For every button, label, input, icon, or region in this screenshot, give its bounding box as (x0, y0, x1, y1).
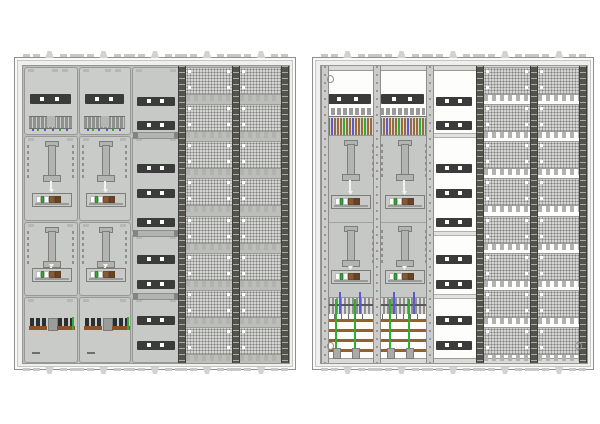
din-cover-strip (137, 316, 175, 325)
strip-column-cover (132, 297, 181, 363)
terminal-wire-stripe (413, 118, 415, 135)
busbar-clamp (387, 348, 395, 359)
din-cover-strip (137, 280, 175, 289)
mount-tab-dash (412, 368, 419, 371)
neutral-wire (359, 292, 361, 314)
bracket-base-lip (89, 203, 123, 205)
mount-tab-dash (60, 54, 67, 57)
mount-tab-bump (552, 367, 566, 374)
mount-tab-dash (569, 54, 576, 57)
mount-tab-dash (579, 54, 586, 57)
mount-tab-dash (244, 54, 251, 57)
section-separator (133, 132, 179, 139)
din-rail-clip-row (186, 206, 230, 212)
meter-terminal-bracket (385, 270, 425, 284)
din-rail-clip-row (484, 132, 528, 138)
comb-rail (324, 304, 373, 306)
mount-tab-dash (542, 54, 549, 57)
field-latch (105, 69, 111, 72)
mount-tab-bump (254, 51, 268, 58)
sls-device-tab (64, 318, 68, 326)
mount-tab-bump (97, 51, 111, 58)
mounting-hole (575, 342, 582, 350)
din-cover-strip (381, 94, 424, 104)
perforated-plate (239, 253, 287, 281)
rail-bracket (433, 294, 477, 299)
sls-device-tab (85, 318, 89, 326)
meter-rail-foot (43, 175, 61, 182)
cabinet-interior (22, 65, 290, 364)
mount-tab-dash (33, 368, 40, 371)
bracket-terminal-segment (354, 273, 360, 280)
busbar (378, 339, 427, 342)
terminal-wire-dot (32, 129, 34, 131)
mount-tab-dash (244, 368, 251, 371)
mount-tab-dash (227, 368, 234, 371)
bracket-terminal-segment (354, 198, 360, 205)
mount-tab-dash (579, 368, 586, 371)
mount-tab-dash (165, 54, 172, 57)
perforated-plate (537, 216, 585, 244)
terminal-wire-stripe (407, 118, 409, 135)
meter-mounting-bar (347, 144, 355, 176)
meter-mounting-bar (48, 231, 56, 263)
field-latch (28, 224, 34, 227)
perforated-plate (537, 253, 585, 281)
neutral-wire (393, 292, 395, 314)
perforated-plate (483, 253, 531, 281)
din-rail-clip-row (186, 318, 230, 324)
din-cover-strip (436, 341, 472, 350)
field-latch (120, 299, 126, 302)
perforated-plate (537, 327, 585, 355)
mount-tab-dash (114, 54, 121, 57)
din-cover-strip (436, 189, 472, 198)
perforated-plate (483, 327, 531, 355)
feed-wire (348, 314, 349, 320)
meter-mounting-bar (48, 145, 56, 177)
mount-tab-dash (234, 54, 241, 57)
terminal-field-cover (24, 67, 78, 135)
terminal-wire-dot (52, 129, 54, 131)
vent-slots (125, 231, 127, 267)
terminal-wire-stripe (349, 118, 351, 135)
vent-slots (125, 145, 127, 181)
vent-slots (27, 231, 29, 267)
mount-tab-dash (77, 368, 84, 371)
device-field-cover (79, 297, 131, 363)
sls-device-tab (42, 318, 46, 326)
meter-terminal-bracket (86, 193, 126, 207)
din-rail-clip-row (484, 355, 528, 361)
perforated-plate (483, 67, 531, 95)
frame-rail-dark (281, 66, 289, 363)
terminal-wire-stripe (340, 118, 342, 135)
mount-tab-dash (180, 368, 187, 371)
sls-device-tab (30, 318, 34, 326)
mount-tab-dash (87, 54, 94, 57)
sls-device-base (84, 326, 102, 330)
mount-tab-dash (515, 54, 522, 57)
mount-tab-dash (23, 54, 30, 57)
mount-tab-dash (23, 368, 30, 371)
mount-tab-dash (525, 368, 532, 371)
sls-device-tab (97, 318, 101, 326)
mount-tab-bump (498, 367, 512, 374)
mount-tab-dash (368, 54, 375, 57)
mount-tab-dash (281, 368, 288, 371)
meter-rail-foot (342, 260, 360, 267)
bracket-base-lip (35, 203, 69, 205)
terminal-wire-stripe (367, 118, 369, 135)
mount-tab-dash (87, 368, 94, 371)
bracket-terminal-segment (109, 196, 115, 203)
device-pe-stripe (127, 317, 129, 330)
mount-tab-dash (478, 54, 485, 57)
din-cover-strip (137, 97, 175, 106)
mount-tab-dash (515, 368, 522, 371)
meter-rail-foot (396, 260, 414, 267)
din-cover-strip (436, 316, 472, 325)
field-latch (120, 138, 126, 141)
mount-tab-dash (532, 368, 539, 371)
mount-tab-dash (234, 368, 241, 371)
terminal-wire-stripe (392, 118, 394, 135)
din-rail-clip-row (484, 169, 528, 175)
mount-tab-dash (321, 54, 328, 57)
meter-terminal-bracket (385, 195, 425, 209)
din-rail-clip-row (484, 95, 528, 101)
terminal-wire-stripe (389, 118, 391, 135)
din-rail-clip-row (484, 206, 528, 212)
mount-tab-dash (165, 368, 172, 371)
terminal-wire-stripe (422, 118, 424, 135)
terminal-wire-dot (106, 129, 108, 131)
din-rail-clip-row (240, 169, 284, 175)
terminal-wire-stripe (398, 118, 400, 135)
meter-hanger-stem (50, 181, 52, 190)
mount-tab-dash (375, 54, 382, 57)
feed-wire (410, 314, 411, 320)
din-rail-clip-row (240, 318, 284, 324)
mount-tab-dash (569, 368, 576, 371)
mount-tab-dash (436, 54, 443, 57)
mount-tab-dash (358, 54, 365, 57)
din-rail-clip-row (538, 132, 582, 138)
feed-wire (403, 314, 404, 320)
meter-mounting-bar (401, 144, 409, 176)
meter-terminal-bracket (331, 270, 371, 284)
field-latch (28, 299, 34, 302)
mount-tab-dash (138, 54, 145, 57)
mount-tab-dash (271, 54, 278, 57)
device-pe-stripe (72, 317, 74, 330)
neutral-wire (339, 292, 341, 314)
din-cover-strip (137, 255, 175, 264)
mount-tab-dash (281, 54, 288, 57)
terminal-wire-stripe (386, 118, 388, 135)
vent-slots (27, 145, 29, 181)
din-rail-clip-row (186, 355, 230, 361)
terminal-wire-dot (112, 129, 114, 131)
din-rail-clip-row (538, 206, 582, 212)
mount-tab-bump (395, 51, 409, 58)
din-cover-strip (326, 94, 371, 104)
din-cover-strip (436, 218, 472, 227)
terminal-wire-stripe (416, 118, 418, 135)
perforated-plate (239, 141, 287, 169)
bracket-base-lip (89, 278, 123, 280)
terminal-wire-stripe (343, 118, 345, 135)
mounting-hole (327, 342, 334, 350)
din-rail-clip-row (186, 281, 230, 287)
meter-rail-foot (97, 175, 115, 182)
terminal-field-cover (79, 67, 131, 135)
meter-terminal-bracket (32, 193, 72, 207)
mount-tab-dash (227, 54, 234, 57)
mount-tab-dash (532, 54, 539, 57)
mount-tab-bump (200, 367, 214, 374)
din-rail-clip-row (240, 206, 284, 212)
terminal-wire-stripe (383, 118, 385, 135)
perforated-plate (239, 178, 287, 206)
mount-tab-dash (70, 54, 77, 57)
mount-tab-dash (358, 368, 365, 371)
diagram-canvas (0, 0, 600, 424)
meter-field-cover (79, 136, 131, 221)
field-latch (120, 224, 126, 227)
meter-hanger-stem (104, 181, 106, 190)
mount-tab-dash (426, 54, 433, 57)
perforated-plate (185, 216, 233, 244)
meter-cabinet-open-frame (312, 57, 594, 370)
field-latch (67, 224, 73, 227)
terminal-wire-stripe (352, 118, 354, 135)
perforated-plate (483, 178, 531, 206)
frame-rail-dark (579, 66, 587, 363)
mount-tab-bump (446, 367, 460, 374)
terminal-wire-row (324, 116, 373, 137)
section-separator (133, 293, 179, 300)
field-latch (83, 69, 89, 72)
perforated-plate (239, 216, 287, 244)
meter-mounting-bar (102, 145, 110, 177)
busbar (323, 329, 374, 332)
perforated-plate (483, 141, 531, 169)
terminal-wire-stripe (361, 118, 363, 135)
mount-tab-dash (70, 368, 77, 371)
comb-rail (379, 304, 426, 306)
field-latch (83, 138, 89, 141)
mount-tab-bump (552, 51, 566, 58)
section-separator (133, 230, 179, 237)
field-label-mark (87, 352, 95, 354)
mount-tab-dash (60, 368, 67, 371)
mount-tab-dash (321, 368, 328, 371)
mount-tab-dash (33, 54, 40, 57)
rail-bracket (433, 133, 477, 138)
mount-tab-dash (478, 368, 485, 371)
mount-tab-bump (395, 367, 409, 374)
din-cover-strip (137, 341, 175, 350)
perforated-plate (537, 178, 585, 206)
din-rail-clip-row (240, 281, 284, 287)
terminal-wire-stripe (355, 118, 357, 135)
meter-field-cover (24, 222, 78, 296)
din-rail-clip-row (538, 281, 582, 287)
mount-tab-bump (97, 367, 111, 374)
din-rail-clip-row (186, 95, 230, 101)
sls-device-tab (58, 318, 62, 326)
sls-device-tab (91, 318, 95, 326)
meter-terminal-bracket (32, 268, 72, 282)
din-rail-clip-row (186, 169, 230, 175)
bracket-terminal-segment (408, 198, 414, 205)
perforated-plate (537, 141, 585, 169)
perforated-plate (239, 67, 287, 95)
vent-slots (72, 231, 74, 267)
mount-tab-bump (148, 367, 162, 374)
perforated-plate (483, 104, 531, 132)
field-latch (115, 69, 121, 72)
terminal-wire-stripe (346, 118, 348, 135)
din-rail-clip-row (186, 132, 230, 138)
perforated-plate (185, 327, 233, 355)
frame-rail-light (373, 66, 381, 363)
bracket-terminal-segment (55, 196, 61, 203)
meter-rail-foot (342, 174, 360, 181)
din-rail-clip-row (484, 318, 528, 324)
din-cover-strip (30, 94, 71, 104)
field-latch (28, 69, 34, 72)
rail-bracket (433, 231, 477, 236)
mount-tab-dash (412, 54, 419, 57)
frame-rail-dark (530, 66, 538, 363)
meter-field-cover (79, 222, 131, 296)
meter-mounting-bar (102, 231, 110, 263)
terminal-wire-stripe (337, 118, 339, 135)
meter-rail-foot (396, 174, 414, 181)
mount-tab-dash (542, 368, 549, 371)
din-cover-strip (436, 164, 472, 173)
terminal-wire-stripe (334, 118, 336, 135)
mount-tab-dash (138, 368, 145, 371)
din-rail-clip-row (484, 244, 528, 250)
din-rail-clip-row (186, 244, 230, 250)
mount-tab-bump (254, 367, 268, 374)
din-cover-strip (137, 121, 175, 130)
din-rail-clip-row (484, 281, 528, 287)
mount-tab-dash (525, 54, 532, 57)
feed-wire (382, 314, 383, 320)
mount-tab-dash (77, 54, 84, 57)
din-rail-clip-row (538, 355, 582, 361)
vent-slots (82, 145, 84, 181)
meter-mounting-bar (347, 230, 355, 262)
terminal-wire-stripe (364, 118, 366, 135)
bracket-base-lip (334, 205, 368, 207)
perforated-plate (185, 290, 233, 318)
mount-tab-dash (426, 368, 433, 371)
separator-latch (133, 230, 138, 236)
meter-cabinet-covered (14, 57, 296, 370)
terminal-wire-dot (119, 129, 121, 131)
terminal-row-center-block (101, 116, 109, 127)
din-rail-clip-row (240, 355, 284, 361)
feed-wire (355, 314, 356, 320)
bracket-terminal-segment (55, 271, 61, 278)
perforated-plate (185, 104, 233, 132)
bracket-terminal-segment (408, 273, 414, 280)
din-rail-clip-row (538, 318, 582, 324)
mount-tab-bump (43, 367, 57, 374)
din-cover-strip (85, 94, 124, 104)
vent-slots (72, 145, 74, 181)
terminal-wire-row (379, 116, 426, 137)
field-latch (62, 69, 68, 72)
cabinet-interior (320, 65, 588, 364)
din-cover-strip (137, 189, 175, 198)
field-latch (67, 138, 73, 141)
perforated-plate (537, 104, 585, 132)
sls-device-tab (119, 318, 123, 326)
field-latch (67, 299, 73, 302)
perforated-plate (537, 67, 585, 95)
separator-latch (133, 293, 138, 299)
busbar (378, 349, 427, 352)
din-rail-clip-row (538, 95, 582, 101)
perforated-plate (239, 327, 287, 355)
feed-wire (417, 314, 418, 320)
mount-tab-dash (463, 54, 470, 57)
bracket-terminal-segment (109, 271, 115, 278)
terminal-wire-dot (37, 129, 39, 131)
terminal-wire-dot (92, 129, 94, 131)
mount-tab-dash (190, 368, 197, 371)
vent-slots (381, 230, 383, 266)
mount-tab-dash (114, 368, 121, 371)
mount-tab-bump (341, 367, 355, 374)
terminal-top-row (380, 108, 425, 115)
field-label-mark (32, 352, 40, 354)
terminal-top-row (325, 108, 372, 115)
mount-tab-dash (488, 368, 495, 371)
terminal-comb (379, 298, 426, 314)
terminal-wire-stripe (410, 118, 412, 135)
perforated-plate (537, 290, 585, 318)
meter-mounting-bar (401, 230, 409, 262)
mount-tab-dash (436, 368, 443, 371)
field-latch (52, 69, 58, 72)
perforated-plate (185, 67, 233, 95)
field-latch (83, 224, 89, 227)
sls-device-base (29, 326, 47, 330)
terminal-wire-stripe (358, 118, 360, 135)
mount-tab-bump (446, 51, 460, 58)
frame-rail-light (426, 66, 434, 363)
meter-hanger-stem (349, 180, 351, 192)
perforated-plate (185, 141, 233, 169)
vent-slots (82, 231, 84, 267)
bracket-base-lip (388, 205, 422, 207)
terminal-wire-dot (59, 129, 61, 131)
terminal-wire-stripe (331, 118, 333, 135)
field-latch (170, 69, 176, 72)
terminal-row-center-block (47, 116, 55, 127)
terminal-wire-stripe (370, 118, 372, 135)
mount-tab-dash (368, 368, 375, 371)
perforated-plate (483, 290, 531, 318)
